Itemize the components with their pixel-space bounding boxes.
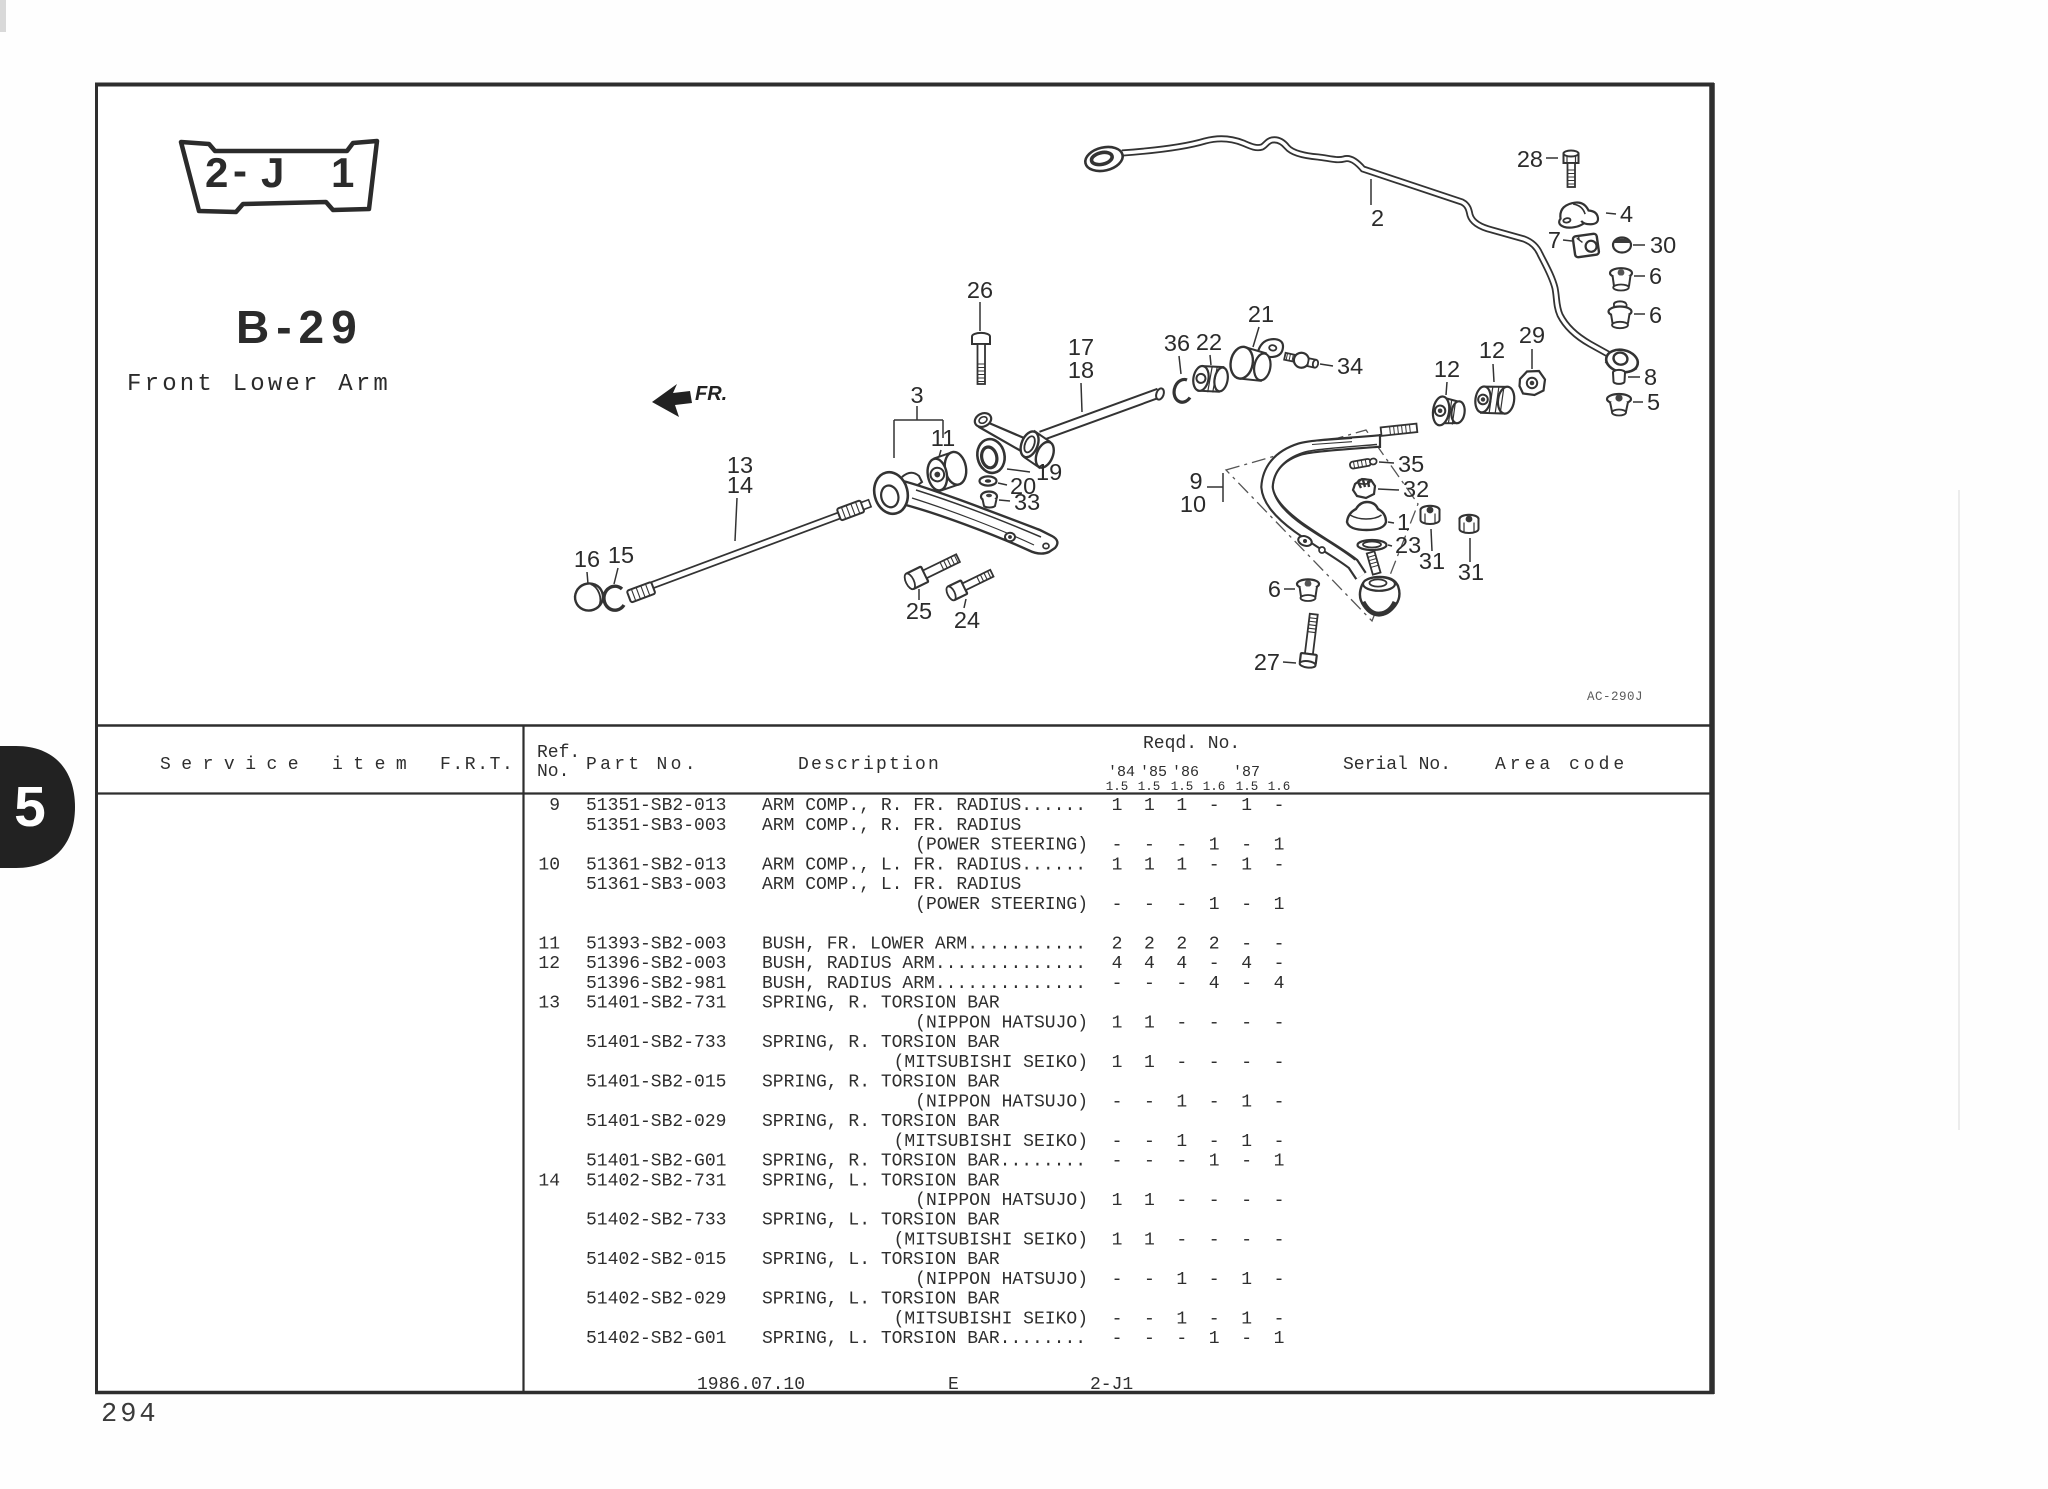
svg-text:Reqd. No.: Reqd. No. [1143,734,1240,754]
svg-text:1.5: 1.5 [1236,780,1259,794]
svg-text:- - - 4 - 4: - - - 4 - 4 [1112,974,1285,994]
svg-text:2-J1: 2-J1 [1090,1375,1133,1395]
svg-text:5: 5 [14,775,46,839]
svg-text:- - 1 - 1 -: - - 1 - 1 - [1112,1132,1285,1152]
svg-text:51351-SB3-003: 51351-SB3-003 [586,816,726,836]
svg-text:ARM COMP., R. FR. RADIUS: ARM COMP., R. FR. RADIUS [762,816,1021,836]
svg-text:ARM COMP., L. FR. RADIUS: ARM COMP., L. FR. RADIUS [762,875,1021,895]
svg-text:1 1 - - - -: 1 1 - - - - [1112,1053,1285,1073]
svg-text:4: 4 [1620,201,1633,227]
svg-text:- - 1 - 1 -: - - 1 - 1 - [1112,1092,1285,1112]
svg-text:item: item [332,755,417,775]
svg-text:28: 28 [1517,146,1543,172]
svg-text:6: 6 [1649,263,1662,289]
svg-text:22: 22 [1196,329,1222,355]
svg-text:21: 21 [1248,301,1274,327]
svg-text:SPRING, L. TORSION BAR: SPRING, L. TORSION BAR [762,1250,1000,1270]
svg-text:51396-SB2-003: 51396-SB2-003 [586,954,726,974]
svg-text:26: 26 [967,277,993,303]
svg-text:SPRING, R. TORSION BAR: SPRING, R. TORSION BAR [762,1112,1000,1132]
svg-text:- - 1 - 1 -: - - 1 - 1 - [1112,1309,1285,1329]
svg-text:(MITSUBISHI SEIKO): (MITSUBISHI SEIKO) [894,1132,1088,1152]
svg-text:51393-SB2-003: 51393-SB2-003 [586,934,726,954]
svg-text:Description: Description [798,755,941,775]
svg-text:13: 13 [538,994,560,1014]
svg-text:19: 19 [1036,459,1062,485]
svg-text:Part No.: Part No. [586,755,699,775]
svg-text:- - - 1 - 1: - - - 1 - 1 [1112,895,1285,915]
svg-text:51402-SB2-G01: 51402-SB2-G01 [586,1329,726,1349]
svg-text:(NIPPON HATSUJO): (NIPPON HATSUJO) [915,1191,1088,1211]
svg-text:FR.: FR. [695,383,727,405]
svg-text:1 1 1 - 1 -: 1 1 1 - 1 - [1112,855,1285,875]
svg-text:(NIPPON HATSUJO): (NIPPON HATSUJO) [915,1013,1088,1033]
svg-text:31: 31 [1419,548,1445,574]
svg-text:-: - [233,147,247,194]
svg-text:- - 1 - 1 -: - - 1 - 1 - [1112,1270,1285,1290]
svg-text:51351-SB2-013: 51351-SB2-013 [586,796,726,816]
svg-text:E: E [948,1375,959,1395]
svg-text:Area code: Area code [1495,755,1628,775]
svg-text:SPRING, R. TORSION BAR: SPRING, R. TORSION BAR [762,1073,1000,1093]
svg-text:SPRING, L. TORSION BAR: SPRING, L. TORSION BAR [762,1171,1000,1191]
svg-text:1.6: 1.6 [1268,780,1291,794]
svg-text:23: 23 [1395,532,1421,558]
svg-text:(NIPPON HATSUJO): (NIPPON HATSUJO) [915,1092,1088,1112]
svg-text:1.6: 1.6 [1203,780,1226,794]
svg-text:9: 9 [549,796,560,816]
svg-text:51402-SB2-029: 51402-SB2-029 [586,1290,726,1310]
svg-text:1 1 - - - -: 1 1 - - - - [1112,1191,1285,1211]
svg-text:51401-SB2-029: 51401-SB2-029 [586,1112,726,1132]
svg-text:2: 2 [1371,205,1384,231]
svg-text:BUSH, RADIUS ARM..............: BUSH, RADIUS ARM.............. [762,974,1086,994]
svg-text:35: 35 [1398,451,1424,477]
svg-text:14: 14 [727,472,753,498]
svg-text:5: 5 [1647,389,1660,415]
svg-text:1 1 1 - 1 -: 1 1 1 - 1 - [1112,796,1285,816]
svg-text:ARM COMP., L. FR. RADIUS......: ARM COMP., L. FR. RADIUS...... [762,855,1086,875]
svg-text:34: 34 [1337,353,1363,379]
svg-text:'86: '86 [1172,764,1199,781]
svg-text:SPRING, R. TORSION BAR........: SPRING, R. TORSION BAR........ [762,1152,1086,1172]
svg-text:Ref.: Ref. [537,743,580,763]
svg-text:27: 27 [1254,649,1280,675]
svg-text:1 1 - - - -: 1 1 - - - - [1112,1231,1285,1251]
svg-text:'87: '87 [1233,764,1260,781]
svg-text:1.5: 1.5 [1171,780,1194,794]
svg-text:36: 36 [1164,330,1190,356]
svg-text:8: 8 [1644,364,1657,390]
svg-text:Service: Service [160,755,309,775]
svg-text:Front Lower Arm: Front Lower Arm [127,371,391,398]
svg-text:11: 11 [931,425,955,451]
svg-text:B-29: B-29 [236,301,364,353]
svg-text:51401-SB2-733: 51401-SB2-733 [586,1033,726,1053]
svg-text:- - - 1 - 1: - - - 1 - 1 [1112,1329,1285,1349]
svg-text:18: 18 [1068,357,1094,383]
svg-text:BUSH, FR. LOWER ARM...........: BUSH, FR. LOWER ARM........... [762,934,1086,954]
svg-text:25: 25 [906,598,932,624]
svg-text:24: 24 [954,607,980,633]
svg-text:16: 16 [574,546,600,572]
svg-text:F.R.T.: F.R.T. [440,755,514,775]
svg-text:12: 12 [1479,337,1505,363]
svg-text:(MITSUBISHI SEIKO): (MITSUBISHI SEIKO) [894,1053,1088,1073]
svg-text:1.5: 1.5 [1138,780,1161,794]
svg-text:6: 6 [1649,302,1662,328]
svg-text:51361-SB3-003: 51361-SB3-003 [586,875,726,895]
svg-text:29: 29 [1519,322,1545,348]
svg-text:11: 11 [538,934,560,954]
svg-text:- - - 1 - 1: - - - 1 - 1 [1112,836,1285,856]
svg-text:51402-SB2-731: 51402-SB2-731 [586,1171,726,1191]
svg-text:14: 14 [538,1171,560,1191]
svg-text:'85: '85 [1140,764,1167,781]
svg-text:51361-SB2-013: 51361-SB2-013 [586,855,726,875]
svg-text:15: 15 [608,542,634,568]
svg-text:SPRING, R. TORSION BAR: SPRING, R. TORSION BAR [762,1033,1000,1053]
svg-text:1986.07.10: 1986.07.10 [697,1375,805,1395]
svg-text:6: 6 [1268,576,1281,602]
svg-text:SPRING, L. TORSION BAR: SPRING, L. TORSION BAR [762,1290,1000,1310]
svg-text:1: 1 [331,149,354,196]
svg-text:AC-290J: AC-290J [1587,690,1643,704]
svg-text:2 2 2 2 - -: 2 2 2 2 - - [1112,934,1285,954]
svg-text:4 4 4 - 4 -: 4 4 4 - 4 - [1112,954,1285,974]
svg-text:51402-SB2-733: 51402-SB2-733 [586,1211,726,1231]
svg-text:BUSH, RADIUS ARM..............: BUSH, RADIUS ARM.............. [762,954,1086,974]
svg-text:ARM COMP., R. FR. RADIUS......: ARM COMP., R. FR. RADIUS...... [762,796,1086,816]
svg-text:J: J [261,149,284,196]
svg-text:2: 2 [205,149,228,196]
svg-text:51401-SB2-015: 51401-SB2-015 [586,1073,726,1093]
svg-text:32: 32 [1403,476,1429,502]
svg-text:51401-SB2-G01: 51401-SB2-G01 [586,1152,726,1172]
svg-text:- - - 1 - 1: - - - 1 - 1 [1112,1152,1285,1172]
svg-text:1.5: 1.5 [1106,780,1129,794]
svg-text:1 1 - - - -: 1 1 - - - - [1112,1013,1285,1033]
svg-text:SPRING, L. TORSION BAR........: SPRING, L. TORSION BAR........ [762,1329,1086,1349]
svg-text:Serial No.: Serial No. [1343,755,1451,775]
svg-text:No.: No. [537,762,569,782]
svg-text:SPRING, R. TORSION BAR: SPRING, R. TORSION BAR [762,994,1000,1014]
svg-text:294: 294 [101,1400,159,1430]
svg-text:SPRING, L. TORSION BAR: SPRING, L. TORSION BAR [762,1211,1000,1231]
svg-text:(MITSUBISHI SEIKO): (MITSUBISHI SEIKO) [894,1231,1088,1251]
svg-text:51401-SB2-731: 51401-SB2-731 [586,994,726,1014]
svg-text:12: 12 [538,954,560,974]
svg-text:(POWER STEERING): (POWER STEERING) [915,895,1088,915]
svg-text:33: 33 [1014,489,1040,515]
svg-text:(POWER STEERING): (POWER STEERING) [915,836,1088,856]
svg-text:51402-SB2-015: 51402-SB2-015 [586,1250,726,1270]
svg-text:(MITSUBISHI SEIKO): (MITSUBISHI SEIKO) [894,1309,1088,1329]
svg-text:(NIPPON HATSUJO): (NIPPON HATSUJO) [915,1270,1088,1290]
svg-text:51396-SB2-981: 51396-SB2-981 [586,974,726,994]
svg-text:12: 12 [1434,356,1460,382]
svg-text:7: 7 [1548,227,1561,253]
svg-text:10: 10 [1180,491,1206,517]
svg-text:'84: '84 [1108,764,1135,781]
svg-text:3: 3 [910,382,923,408]
svg-text:10: 10 [538,855,560,875]
svg-text:31: 31 [1458,559,1484,585]
svg-text:30: 30 [1650,232,1676,258]
